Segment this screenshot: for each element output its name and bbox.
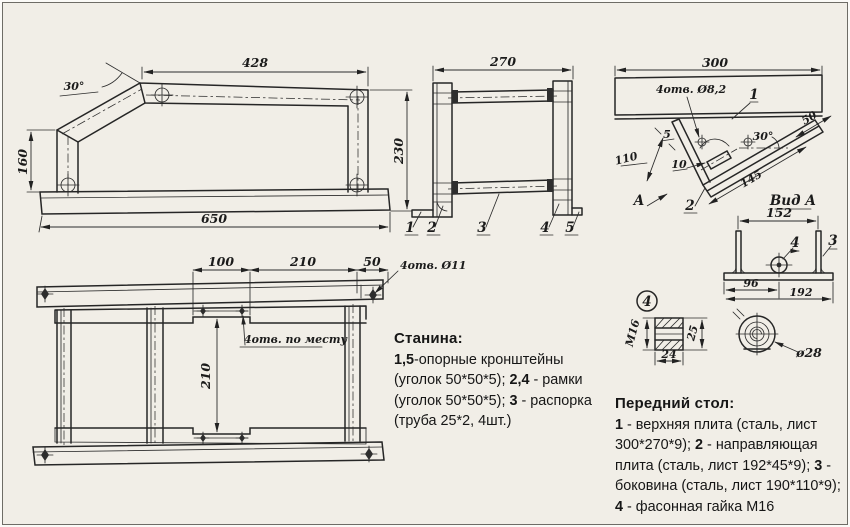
part-label-3: 3 (477, 220, 486, 236)
dim-dia-28: ø28 (795, 345, 822, 360)
cross-tubes (448, 88, 557, 194)
note-stanina-body: 1,5-опорные кронштейны(уголок 50*50*5); … (394, 350, 609, 432)
holes-place-label: 4отв. по месту (244, 333, 348, 346)
dim-24: 24 (660, 348, 676, 361)
dim-428: 428 (242, 55, 268, 70)
stand-front-view-drawing: 270 1 2 3 4 5 (397, 46, 607, 251)
mounting-holes (57, 84, 368, 196)
dim-96: 96 (743, 277, 759, 290)
dim-25: 25 (684, 324, 701, 343)
part-label-1: 1 (405, 220, 414, 236)
dim-270: 270 (489, 54, 516, 69)
dim-5: 5 (663, 128, 671, 141)
middle-dimension: 210 4отв. по месту (198, 316, 348, 432)
stand-side-view-drawing: 428 30° 160 230 650 (18, 46, 418, 246)
note-stanina-title: Станина: (394, 330, 609, 347)
dim-210-chain: 210 (289, 254, 316, 269)
part-label-4: 4 (540, 220, 549, 236)
dim-angle-30-table: 30° (753, 130, 774, 143)
technical-drawing-sheet: 428 30° 160 230 650 (0, 0, 850, 527)
dim-210-height: 210 (198, 363, 213, 390)
detail-badge-4: 4 (642, 294, 651, 310)
part-label-guide-2: 2 (684, 198, 694, 214)
dim-m16: М16 (623, 318, 643, 349)
note-front-table-body: 1 - верхняя плита (сталь, лист300*270*9)… (615, 415, 847, 517)
dim-160: 160 (15, 149, 30, 175)
top-rail (37, 280, 383, 307)
part-label-2: 2 (426, 220, 436, 236)
dim-100: 100 (208, 254, 234, 269)
dimensions: 428 30° 160 230 650 (15, 55, 412, 232)
dim-300: 300 (702, 55, 728, 70)
dim-110: 110 (613, 149, 639, 167)
view-arrow-label: А (633, 193, 645, 209)
bottom-rail (33, 442, 384, 465)
note-front-table: Передний стол: 1 - верхняя плита (сталь,… (615, 395, 847, 517)
dim-192: 192 (790, 286, 813, 299)
part-label-nut-4: 4 (790, 235, 799, 251)
part-label-side-3: 3 (828, 233, 837, 249)
dim-650: 650 (201, 211, 227, 226)
front-table-drawing: 300 1 4отв. Ø8,2 30° 110 5 (603, 58, 848, 403)
nut-section-detail: 4 М16 25 24 (623, 291, 707, 365)
view-a: Вид А 152 4 3 96 192 (724, 193, 838, 303)
dimensions: 270 (433, 54, 573, 81)
holes-11-label: 4отв. Ø11 (400, 259, 466, 272)
holes-8-2-label: 4отв. Ø8,2 (656, 83, 727, 96)
stand-frame-outline (40, 83, 390, 214)
note-stanina: Станина: 1,5-опорные кронштейны(уголок 5… (394, 330, 609, 432)
dim-50-chain: 50 (363, 254, 381, 269)
part-label-plate-1: 1 (749, 87, 758, 103)
part-label-5: 5 (565, 220, 574, 236)
dim-152: 152 (766, 205, 792, 220)
drawing-paper: 428 30° 160 230 650 (2, 2, 848, 525)
nut-face-detail: ø28 (733, 309, 822, 360)
dim-angle-30: 30° (64, 80, 85, 93)
note-front-table-title: Передний стол: (615, 395, 847, 412)
